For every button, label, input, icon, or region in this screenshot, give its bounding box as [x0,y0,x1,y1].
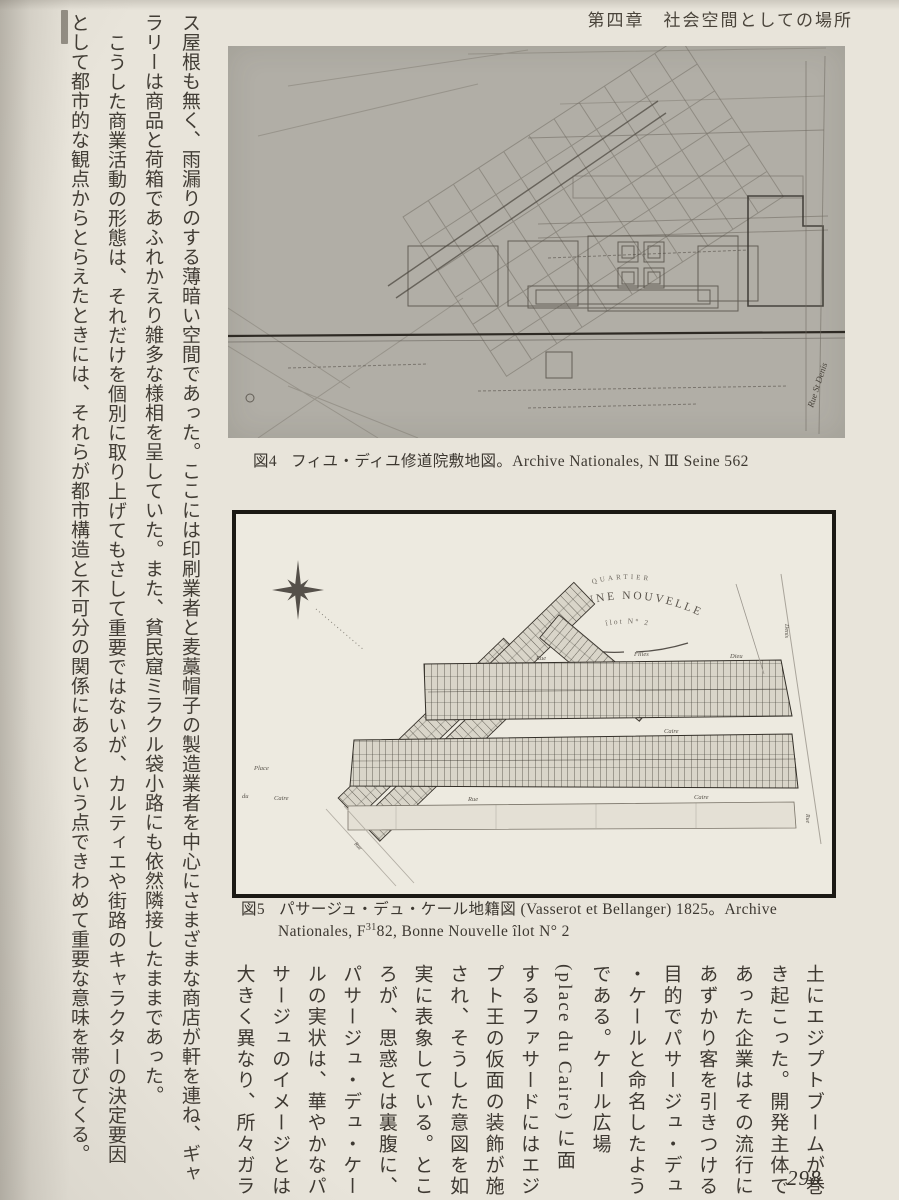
text-column: プト王の仮面の装飾が施 [475,964,511,1200]
text-column: (place du Caire) に面 [546,964,582,1200]
street-label: Rue [467,796,478,803]
text-column: である。ケール広場 [582,964,618,1200]
left-text-block: ス屋根も無く、雨漏りのする薄暗い空間であった。ここには印刷業者と麦藁帽子の製造業… [56,0,208,1200]
street-label: Filles [633,651,649,658]
page-number: 298 [787,1166,822,1191]
chapter-header: 第四章 社会空間としての場所 [588,6,854,31]
fig5-map-svg: QUARTIER BONNE NOUVELLE îlot N° 2 [236,514,832,894]
text-column: あった企業はその流行に [724,964,760,1200]
figure5-caption-text: Nationales, F [278,923,366,940]
place-du-caire-label: Caire [274,795,289,802]
figure4-caption: 図4フィユ・ディユ修道院敷地図。Archive Nationales, N Ⅲ … [253,449,749,471]
figure5-map: QUARTIER BONNE NOUVELLE îlot N° 2 [232,510,836,898]
text-column: ・ケールと命名したよう [617,964,653,1200]
text-column: として都市的な観点からとらえたときには、それらが都市構造と不可分の関係にあるとい… [60,13,97,1200]
text-column: こうした商業活動の形態は、それだけを個別に取り上げてもさして重要ではないが、カル… [97,13,134,1200]
text-column: き起こった。開発主体で [760,964,796,1200]
street-label: Rue [804,813,810,824]
compass-star-icon [272,560,324,620]
text-column: 実に表象している。とこ [404,964,440,1200]
text-column: あずかり客を引きつける [689,964,725,1200]
fig4-map-svg: Rue St Denis [228,46,845,438]
bottom-text-block: 土にエジプトブームが巻 き起こった。開発主体で あった企業はその流行に あずかり… [225,952,831,1200]
figure5-caption-text: 82, Bonne Nouvelle îlot N° 2 [377,923,570,940]
fig4-street-label: Rue St Denis [805,361,829,410]
photo-edge-artifact [61,10,68,44]
place-du-caire-label: Place [253,765,269,772]
text-column: するファサードにはエジ [511,964,547,1200]
text-column: ろが、思惑とは裏腹に、 [368,964,404,1200]
text-column: サージュのイメージとは [262,964,298,1200]
text-column: 土にエジプトブームが巻 [795,964,831,1200]
figure5-caption-line2: Nationales, F3182, Bonne Nouvelle îlot N… [278,922,570,941]
text-column: ルの実状は、華やかなパ [297,964,333,1200]
figure4-caption-text: フィユ・ディユ修道院敷地図。Archive Nationales, N Ⅲ Se… [291,453,749,470]
svg-text:QUARTIER: QUARTIER [591,573,652,586]
text-column: 大きく異なり、所々ガラ [226,964,262,1200]
figure5-caption-label: 図5 [241,901,265,918]
superscript: 31 [366,922,377,933]
text-column: ラリーは商品と荷箱であふれかえり雑多な様相を呈していた。また、貧民窟ミラクル袋小… [134,13,171,1200]
street-label: Caire [664,728,679,735]
street-label: Denis [783,623,789,639]
street-label: Dieu [729,653,743,660]
street-label: Rue [535,655,546,662]
text-column: パサージュ・デュ・ケー [333,964,369,1200]
text-column: ス屋根も無く、雨漏りのする薄暗い空間であった。ここには印刷業者と麦藁帽子の製造業… [171,13,208,1200]
figure5-caption-line1: 図5パサージュ・デュ・ケール地籍図 (Vasserot et Bellanger… [241,897,777,919]
text-column: 目的でパサージュ・デュ [653,964,689,1200]
street-label: Caire [694,794,709,801]
svg-text:îlot N° 2: îlot N° 2 [604,616,651,627]
street-label: Rue [352,841,363,853]
figure4-map: Rue St Denis [228,46,845,438]
figure4-caption-label: 図4 [253,453,277,470]
text-column: され、そうした意図を如 [439,964,475,1200]
place-du-caire-label: du [242,793,249,800]
figure5-caption-text: パサージュ・デュ・ケール地籍図 (Vasserot et Bellanger) … [279,901,777,918]
